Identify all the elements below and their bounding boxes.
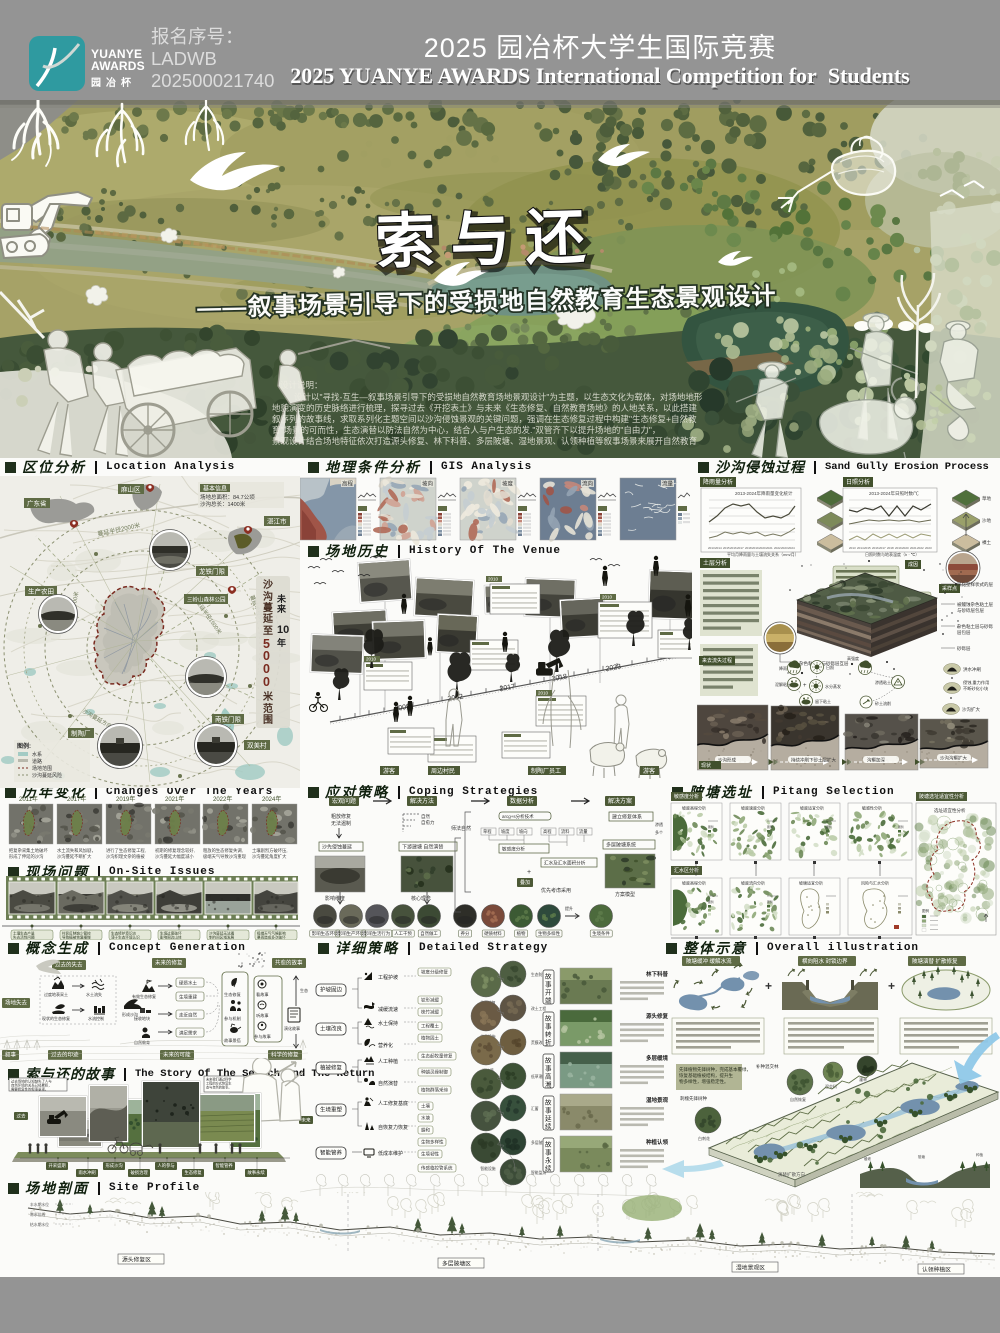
svg-text:设计说明：: 设计说明： (280, 380, 323, 390)
svg-text:影响周边山体: 影响周边山体 (160, 935, 182, 940)
svg-text:草程: 草程 (483, 828, 492, 835)
svg-text:制约间区域发展: 制约间区域发展 (209, 935, 235, 940)
svg-text:工程覆土: 工程覆土 (421, 1023, 439, 1030)
svg-text:丰水期水位: 丰水期水位 (30, 1202, 49, 1207)
svg-text:事: 事 (545, 1148, 552, 1157)
svg-text:基本信息: 基本信息 (203, 485, 227, 493)
svg-text:索与还: 索与还 (375, 203, 602, 276)
svg-text:水塘: 水塘 (421, 1115, 430, 1122)
svg-text:2013: 2013 (708, 546, 715, 550)
svg-text:土壤剧烈方破坏压,: 土壤剧烈方破坏压, (252, 847, 288, 854)
svg-text:景观设计结合场地特征依次打造源头修复、林下科普、多层陂塘、湿: 景观设计结合场地特征依次打造源头修复、林下科普、多层陂塘、湿地景观、认领种植等叙… (272, 436, 697, 446)
svg-text:制陶厂员工: 制陶厂员工 (531, 767, 561, 775)
svg-text:故: 故 (545, 1056, 552, 1065)
svg-text:自然恢复: 自然恢复 (790, 1096, 806, 1102)
svg-text:地貌演变的历史脉络进行梳理，探寻过去《开挖表土》与未来《生态: 地貌演变的历史脉络进行梳理，探寻过去《开挖表土》与未来《生态修复、自然教育场地》… (272, 403, 698, 413)
svg-text:失去活性问题: 失去活性问题 (13, 935, 35, 940)
svg-text:折: 折 (545, 1038, 552, 1047)
svg-text:2013-2024年降雨量变化统计: 2013-2024年降雨量变化统计 (735, 490, 793, 497)
svg-text:生物多样性: 生物多样性 (421, 1139, 444, 1146)
svg-text:人工种植: 人工种植 (378, 1058, 398, 1065)
svg-text:蜡和: 蜡和 (421, 1127, 430, 1134)
svg-text:认领种植区: 认领种植区 (922, 1265, 951, 1273)
svg-text:有效生态修复: 有效生态修复 (132, 993, 156, 999)
svg-text:广东省: 广东省 (27, 499, 47, 508)
svg-text:日照分析: 日照分析 (846, 478, 870, 486)
svg-text:开: 开 (545, 989, 552, 997)
svg-text:2014: 2014 (857, 546, 864, 550)
svg-text:共愈的故事: 共愈的故事 (275, 959, 303, 967)
svg-text:来: 来 (276, 603, 287, 614)
svg-text:2016: 2016 (872, 546, 879, 550)
svg-text:土壤: 土壤 (421, 1103, 430, 1110)
svg-text:故: 故 (545, 1014, 552, 1023)
svg-text:走近自然: 走近自然 (179, 1012, 197, 1019)
svg-text:接收地块: 接收地块 (134, 1015, 150, 1021)
svg-text:湿地景观区: 湿地景观区 (736, 1263, 765, 1271)
svg-text:故: 故 (545, 972, 552, 981)
svg-text:缓坡: 缓坡 (864, 1156, 872, 1161)
svg-text:持续冲刷下砂土层扩大: 持续冲刷下砂土层扩大 (791, 756, 836, 763)
svg-text:参与机制: 参与机制 (224, 1015, 241, 1022)
svg-text:看故事: 看故事 (256, 991, 269, 998)
svg-text:2024: 2024 (788, 546, 795, 550)
svg-text:生境重塑: 生境重塑 (320, 1106, 343, 1114)
svg-text:蔓: 蔓 (263, 601, 274, 614)
svg-text:2022: 2022 (917, 546, 924, 550)
svg-text:湛江市: 湛江市 (267, 517, 287, 526)
svg-text:设计以"寻找-互生—叙事场景引导下的受损地自然教育场地景观设: 设计以"寻找-互生—叙事场景引导下的受损地自然教育场地景观设计"为主题，以生态文… (294, 392, 703, 402)
svg-text:图例: 图例 (767, 825, 773, 829)
svg-text:2010: 2010 (602, 595, 613, 600)
svg-text:0: 0 (263, 675, 270, 689)
svg-text:图例: 图例 (922, 908, 930, 913)
svg-text:与砂砾层包层: 与砂砾层包层 (957, 607, 984, 614)
svg-text:生态起牧童修复: 生态起牧童修复 (421, 1053, 453, 1060)
svg-text:传感临控管系统: 传感临控管系统 (421, 1165, 453, 1172)
svg-text:事: 事 (545, 1106, 552, 1115)
svg-text:种蜡灵缘制御: 种蜡灵缘制御 (421, 1069, 448, 1076)
svg-text:坡向: 坡向 (422, 480, 433, 488)
svg-text:沙沟总长：1400米: 沙沟总长：1400米 (200, 500, 246, 508)
svg-text:低成本维护: 低成本维护 (378, 1150, 403, 1157)
svg-text:植被修复: 植被修复 (320, 1064, 343, 1072)
svg-text:故: 故 (545, 1098, 552, 1107)
svg-text:白刺花: 白刺花 (698, 1135, 710, 1141)
svg-text:开采盛期: 开采盛期 (49, 1162, 66, 1169)
svg-text:形成了伸延的沙沟: 形成了伸延的沙沟 (9, 853, 43, 860)
svg-text:裸土: 裸土 (982, 539, 991, 546)
svg-text:坡度: 坡度 (501, 828, 510, 835)
svg-text:流量: 流量 (579, 828, 588, 835)
svg-text:建立修复体系: 建立修复体系 (612, 814, 642, 821)
svg-text:故事永续: 故事永续 (248, 1169, 266, 1176)
svg-text:多个陂塘: 多个陂塘 (655, 829, 663, 835)
svg-text:人的参与: 人的参与 (158, 1162, 175, 1169)
svg-text:2017: 2017 (499, 683, 516, 693)
svg-text:敏感度分析: 敏感度分析 (674, 793, 699, 800)
svg-text:土壤改良: 土壤改良 (320, 1025, 343, 1033)
svg-text:2011年: 2011年 (19, 795, 38, 803)
svg-text:图例: 图例 (708, 900, 714, 904)
svg-text:沟: 沟 (263, 590, 273, 603)
svg-text:降雨: 降雨 (779, 665, 787, 671)
svg-text:生物多样性: 生物多样性 (538, 930, 561, 937)
svg-text:制陶厂: 制陶厂 (71, 729, 91, 738)
svg-text:麻山区: 麻山区 (121, 485, 141, 494)
svg-text:采样点: 采样点 (942, 585, 957, 592)
svg-text:水系: 水系 (32, 751, 42, 758)
svg-text:年: 年 (277, 637, 286, 648)
svg-text:被鳗蚀杂色粘土层: 被鳗蚀杂色粘土层 (957, 601, 993, 608)
svg-text:平均月降雨量与土壤流失关系（mm/月）: 平均月降雨量与土壤流失关系（mm/月） (727, 551, 799, 557)
svg-text:流料: 流料 (561, 828, 570, 835)
svg-text:陂塘: 陂塘 (918, 1154, 926, 1159)
svg-text:层包层: 层包层 (957, 629, 971, 636)
svg-text:高程: 高程 (543, 828, 552, 835)
svg-text:延: 延 (262, 612, 274, 625)
svg-text:沙沟蔓延大幅度减小: 沙沟蔓延大幅度减小 (155, 853, 194, 860)
svg-text:横向阻水 封锁边界: 横向阻水 封锁边界 (802, 957, 848, 965)
svg-text:敏感性分析: 敏感性分析 (862, 805, 882, 811)
svg-text:人工干预: 人工干预 (394, 930, 412, 937)
svg-text:植物固土: 植物固土 (421, 1035, 439, 1042)
svg-text:日照: 日照 (826, 665, 834, 670)
svg-text:核心理念: 核心理念 (411, 895, 431, 902)
svg-text:端: 端 (545, 996, 552, 1005)
svg-text:风险与汇水分析: 风险与汇水分析 (861, 880, 889, 886)
svg-text:2024年: 2024年 (262, 795, 281, 803)
svg-text:潮: 潮 (545, 1080, 552, 1089)
svg-text:2020: 2020 (902, 546, 909, 550)
svg-text:2015: 2015 (723, 546, 730, 550)
svg-text:演替扩散方向: 演替扩散方向 (778, 1171, 805, 1178)
svg-text:宏观问题: 宏观问题 (332, 797, 356, 805)
svg-text:雨水冲刷: 雨水冲刷 (79, 1169, 96, 1176)
svg-text:坡度高程分析: 坡度高程分析 (682, 880, 706, 886)
svg-text:坡度高程分析: 坡度高程分析 (682, 805, 706, 811)
svg-text:初期的修复理念较好,: 初期的修复理念较好, (155, 847, 195, 854)
svg-text:粗放修复: 粗放修复 (331, 813, 351, 820)
svg-text:来去流失过程: 来去流失过程 (702, 657, 732, 664)
svg-text:水土保持: 水土保持 (378, 1020, 398, 1027)
svg-text:形成沙沟: 形成沙沟 (106, 1162, 123, 1169)
svg-text:源头修复区: 源头修复区 (122, 1255, 151, 1263)
svg-text:转: 转 (545, 1030, 552, 1039)
svg-text:沙先侵蚀蔓延: 沙先侵蚀蔓延 (322, 844, 352, 851)
svg-text:态与自然的故事。: 态与自然的故事。 (206, 1085, 232, 1090)
svg-text:工程护坡: 工程护坡 (378, 974, 398, 981)
svg-text:2018: 2018 (887, 546, 894, 550)
svg-text:2021: 2021 (766, 546, 773, 550)
svg-text:未: 未 (276, 593, 287, 604)
svg-text:减缓流速: 减缓流速 (378, 1006, 398, 1013)
svg-text:多层陂塘系统: 多层陂塘系统 (606, 842, 636, 849)
svg-text:围: 围 (263, 714, 273, 726)
svg-text:图例: 图例 (898, 825, 904, 829)
svg-text:游客: 游客 (643, 767, 655, 775)
svg-text:影响生产环境: 影响生产环境 (338, 930, 365, 937)
svg-text:风化塑样状式的层: 风化塑样状式的层 (957, 581, 993, 588)
svg-text:植物: 植物 (517, 930, 526, 937)
svg-text:物多样性，增强稳定性。: 物多样性，增强稳定性。 (679, 1078, 729, 1085)
svg-text:枯水期水位: 枯水期水位 (30, 1222, 49, 1227)
svg-text:低草潮: 低草潮 (531, 1074, 543, 1079)
svg-text:汇水及汇水面积分析: 汇水及汇水面积分析 (544, 860, 586, 867)
svg-text:水土流失和风加剧，: 水土流失和风加剧， (57, 847, 96, 854)
svg-text:过度地表采土: 过度地表采土 (44, 991, 68, 997)
svg-text:2017: 2017 (737, 546, 744, 550)
svg-text:优先考虑采用: 优先考虑采用 (541, 887, 571, 894)
svg-text:2018: 2018 (745, 546, 752, 550)
svg-text:师法自然: 师法自然 (451, 825, 471, 832)
svg-text:听故事: 听故事 (256, 1012, 269, 1019)
svg-text:陂塘选址适宜性分析: 陂塘选址适宜性分析 (919, 793, 964, 800)
svg-text:杂色粘土层与砂砾: 杂色粘土层与砂砾 (957, 623, 993, 630)
svg-text:高程: 高程 (342, 480, 354, 488)
svg-text:日照时数与地表温度（h · ℃）: 日照时数与地表温度（h · ℃） (865, 551, 919, 557)
svg-text:2019: 2019 (752, 546, 759, 550)
svg-text:自然做工: 自然做工 (420, 930, 438, 937)
svg-text:数据分析: 数据分析 (510, 797, 534, 805)
svg-text:生态修复: 生态修复 (224, 991, 242, 998)
svg-text:范: 范 (263, 702, 273, 715)
svg-text:2023: 2023 (925, 546, 932, 550)
svg-text:生境韧性: 生境韧性 (421, 1151, 439, 1158)
svg-text:高强度: 高强度 (847, 655, 859, 661)
svg-text:生境条件: 生境条件 (592, 930, 610, 937)
svg-text:2013: 2013 (849, 546, 856, 550)
svg-text:水流控制: 水流控制 (88, 1015, 104, 1021)
svg-text:三岭山森林公园: 三岭山森林公园 (187, 596, 226, 604)
svg-text:+: + (527, 869, 531, 876)
svg-text:营养化: 营养化 (378, 1042, 393, 1049)
svg-text:草地: 草地 (982, 495, 991, 502)
svg-text:过去的失去: 过去的失去 (55, 961, 83, 969)
svg-text:2023: 2023 (781, 546, 788, 550)
svg-text:生境重建: 生境重建 (179, 994, 197, 1001)
svg-text:沟壑加深: 沟壑加深 (867, 756, 885, 763)
svg-text:水土流失: 水土流失 (86, 991, 102, 997)
svg-text:沙沟蔓延角度扩大: 沙沟蔓延角度扩大 (252, 853, 287, 860)
svg-text:演化故事: 演化故事 (284, 1025, 300, 1031)
svg-text:周边村民: 周边村民 (431, 767, 455, 775)
svg-text:土层分析: 土层分析 (703, 559, 727, 567)
svg-text:泥解粘土: 泥解粘土 (775, 681, 791, 687)
svg-text:智能设施: 智能设施 (480, 1166, 495, 1171)
svg-text:自然: 自然 (421, 813, 430, 820)
svg-text:2015: 2015 (864, 546, 871, 550)
svg-text:+: + (803, 683, 807, 689)
svg-text:解决方案: 解决方案 (608, 797, 632, 805)
svg-text:自恢复力恢复: 自恢复力恢复 (378, 1124, 408, 1131)
svg-text:改土工程: 改土工程 (531, 1006, 546, 1011)
svg-text:2020: 2020 (759, 546, 766, 550)
svg-text:现状: 现状 (701, 762, 711, 769)
svg-text:陂塘缓冲 缓解水流: 陂塘缓冲 缓解水流 (686, 957, 732, 965)
svg-text:刺槐先锋树种: 刺槐先锋树种 (680, 1095, 707, 1102)
svg-text:破损治理: 破损治理 (131, 1169, 149, 1176)
svg-text:场地范围: 场地范围 (32, 765, 52, 772)
svg-text:事: 事 (545, 1022, 552, 1031)
svg-text:arcg+s分析技术: arcg+s分析技术 (502, 813, 534, 820)
svg-text:0: 0 (263, 649, 270, 663)
svg-text:双美村: 双美村 (247, 741, 267, 750)
svg-text:水分蒸发: 水分蒸发 (825, 683, 841, 689)
svg-text:不断砂化小块: 不断砂化小块 (963, 685, 989, 692)
svg-text:种植: 种植 (976, 1152, 984, 1157)
svg-text:把复杂采集土地破坏: 把复杂采集土地破坏 (9, 847, 48, 854)
svg-text:10: 10 (277, 624, 289, 636)
svg-text:无法遏制: 无法遏制 (331, 820, 351, 827)
svg-text:满足需求: 满足需求 (179, 1030, 197, 1037)
svg-text:场地总面积：84.7公顷: 场地总面积：84.7公顷 (200, 493, 255, 501)
svg-text:+: + (765, 979, 772, 993)
svg-text:2019: 2019 (895, 546, 902, 550)
svg-text:杂色粘土层与砂砾层互层: 杂色粘土层与砂砾层互层 (799, 660, 849, 667)
svg-text:坡度: 坡度 (502, 480, 514, 488)
svg-text:选址适宜性分析: 选址适宜性分析 (934, 807, 966, 814)
svg-text:坡向: 坡向 (519, 828, 528, 835)
svg-text:硬质材料: 硬质材料 (484, 930, 502, 937)
svg-text:图例: 图例 (767, 900, 773, 904)
svg-text:2017: 2017 (879, 546, 886, 550)
svg-text:沙沟蔓延风险: 沙沟蔓延风险 (32, 772, 62, 779)
svg-text:2016: 2016 (730, 546, 737, 550)
svg-text:2010: 2010 (488, 577, 499, 582)
svg-text:人工修复基底: 人工修复基底 (378, 1100, 408, 1107)
svg-text:沙沟织理文杂的植被: 沙沟织理文杂的植被 (106, 853, 145, 860)
svg-text:沙沟蔓延不断扩大: 沙沟蔓延不断扩大 (57, 853, 92, 860)
svg-text:钛形减缓: 钛形减缓 (421, 997, 439, 1004)
svg-text:解决方法: 解决方法 (410, 797, 434, 805)
svg-text:智能管养: 智能管养 (216, 1162, 234, 1169)
svg-text:沙地: 沙地 (982, 517, 991, 523)
svg-text:坡度流向分析: 坡度流向分析 (741, 880, 765, 886)
svg-text:陂塘演替 扩散修复: 陂塘演替 扩散修复 (912, 957, 958, 965)
svg-text:自然演替: 自然演替 (378, 1080, 398, 1087)
svg-text:流向: 流向 (582, 480, 593, 488)
svg-text:下游建塘 自然演替: 下游建塘 自然演替 (402, 844, 443, 851)
svg-text:坡塘适宜分析: 坡塘适宜分析 (799, 880, 823, 886)
svg-text:图例: 图例 (826, 825, 832, 829)
svg-text:2017年: 2017年 (67, 795, 86, 803)
svg-text:汇蓄: 汇蓄 (531, 1106, 539, 1111)
svg-text:进行了生态修复工程,: 进行了生态修复工程, (106, 847, 146, 854)
svg-text:洪水冲刷: 洪水冲刷 (963, 666, 981, 673)
svg-text:补种混交林: 补种混交林 (756, 1063, 779, 1070)
svg-text:叠加: 叠加 (520, 879, 530, 886)
svg-text:事: 事 (545, 1064, 552, 1073)
svg-text:沙: 沙 (263, 579, 273, 591)
svg-text:养分: 养分 (461, 930, 470, 937)
svg-text:事: 事 (545, 980, 552, 989)
svg-text:提升: 提升 (565, 905, 573, 911)
svg-text:生产农田: 生产农田 (28, 587, 54, 596)
svg-text:续: 续 (545, 1122, 552, 1131)
svg-text:游客: 游客 (383, 767, 395, 775)
svg-text:延: 延 (545, 1114, 552, 1123)
svg-text:多层陂塘区: 多层陂塘区 (442, 1259, 471, 1267)
svg-text:坡度适宜分析: 坡度适宜分析 (800, 805, 824, 811)
svg-text:道路: 道路 (32, 758, 42, 765)
svg-text:参与故事: 参与故事 (254, 1033, 271, 1040)
svg-text:汇水区分析: 汇水区分析 (674, 867, 699, 874)
svg-text:场地失去: 场地失去 (5, 999, 28, 1007)
svg-text:植物群落采缔: 植物群落采缔 (421, 1087, 448, 1094)
svg-text:流量: 流量 (662, 480, 674, 488)
svg-text:图例: 图例 (708, 825, 714, 829)
svg-text:至: 至 (263, 625, 273, 637)
svg-text:梳竹减缓: 梳竹减缓 (421, 1009, 439, 1016)
svg-text:坡度分级修复: 坡度分级修复 (421, 969, 448, 976)
svg-text:高: 高 (545, 1072, 552, 1081)
svg-text:南铁门限: 南铁门限 (215, 715, 242, 724)
svg-text:极端天气导致沙沟重现: 极端天气导致沙沟重现 (203, 853, 247, 860)
svg-text:生态修复: 生态修复 (185, 1169, 203, 1176)
svg-text:成因: 成因 (908, 561, 918, 568)
svg-text:图例:: 图例: (17, 742, 31, 750)
svg-text:常水位线: 常水位线 (30, 1212, 45, 1217)
svg-text:暴雨造成多次破坏: 暴雨造成多次破坏 (257, 935, 286, 940)
svg-text:现状的生态修复: 现状的生态修复 (42, 1015, 70, 1021)
svg-text:2010: 2010 (366, 657, 377, 662)
svg-text:2013-2024年日照时数/℃: 2013-2024年日照时数/℃ (869, 490, 919, 497)
svg-text:2010: 2010 (538, 691, 549, 696)
svg-text:2021年: 2021年 (165, 795, 184, 803)
svg-text:2021: 2021 (910, 546, 917, 550)
svg-text:护坡固边: 护坡固边 (320, 986, 343, 994)
svg-text:降雨量分析: 降雨量分析 (703, 478, 733, 486)
svg-text:龙铁门限: 龙铁门限 (199, 567, 226, 576)
svg-text:导致植被恢复缓慢: 导致植被恢复缓慢 (62, 935, 91, 940)
svg-text:永: 永 (545, 1156, 552, 1165)
svg-text:育"场景的可而性，生态演替以防法自然为中心，结合人与户生态的: 育"场景的可而性，生态演替以防法自然为中心，结合人与户生态的发."双管齐下以提升… (272, 425, 660, 435)
svg-text:2022年: 2022年 (213, 795, 232, 803)
svg-text:过去: 过去 (17, 1112, 26, 1119)
svg-text:0: 0 (263, 662, 270, 676)
svg-text:粗放的生态修复失调,: 粗放的生态修复失调, (203, 847, 243, 854)
svg-text:故: 故 (545, 1140, 552, 1149)
svg-text:坡度速度分析: 坡度速度分析 (741, 805, 765, 811)
svg-text:2022: 2022 (774, 546, 781, 550)
svg-text:硬质水土: 硬质水土 (179, 980, 197, 987)
svg-text:+: + (888, 979, 895, 993)
svg-text:米: 米 (263, 690, 274, 703)
svg-text:影响生活行为: 影响生活行为 (364, 930, 390, 937)
svg-text:砂砾层: 砂砾层 (957, 645, 971, 652)
svg-text:未来的修复: 未来的修复 (155, 959, 183, 967)
svg-text:续: 续 (545, 1164, 552, 1173)
svg-text:影响生态环境: 影响生态环境 (312, 930, 339, 937)
svg-text:先锋植物先锋树种，完成基本覆绿，: 先锋植物先锋树种，完成基本覆绿， (679, 1066, 751, 1073)
svg-text:渗透系统: 渗透系统 (655, 821, 663, 827)
svg-text:恢复基础植被结构，提升生: 恢复基础植被结构，提升生 (679, 1072, 733, 1079)
svg-text:2023: 2023 (605, 663, 622, 673)
svg-text:侵蚀,重力作用: 侵蚀,重力作用 (963, 679, 989, 686)
svg-text:薄于生态环境认识: 薄于生态环境认识 (111, 935, 140, 940)
svg-text:敏感度分析: 敏感度分析 (502, 846, 525, 853)
svg-text:2019年: 2019年 (116, 795, 135, 803)
svg-text:方案模型: 方案模型 (615, 891, 635, 898)
svg-text:2014: 2014 (715, 546, 722, 550)
svg-text:渗透粘土: 渗透粘土 (875, 679, 891, 685)
svg-text:叙序列的故事线，求取系列化主题空间以沙沟侵蚀景观的关键问题，: 叙序列的故事线，求取系列化主题空间以沙沟侵蚀景观的关键问题，强调在生态修复过程中… (272, 414, 697, 424)
svg-text:沙沟沟壑扩大: 沙沟沟壑扩大 (940, 754, 967, 761)
svg-text:智能管养: 智能管养 (320, 1149, 343, 1157)
svg-text:需要修复性的叙事景观。: 需要修复性的叙事景观。 (11, 1087, 48, 1092)
svg-text:自愈力: 自愈力 (421, 819, 435, 826)
